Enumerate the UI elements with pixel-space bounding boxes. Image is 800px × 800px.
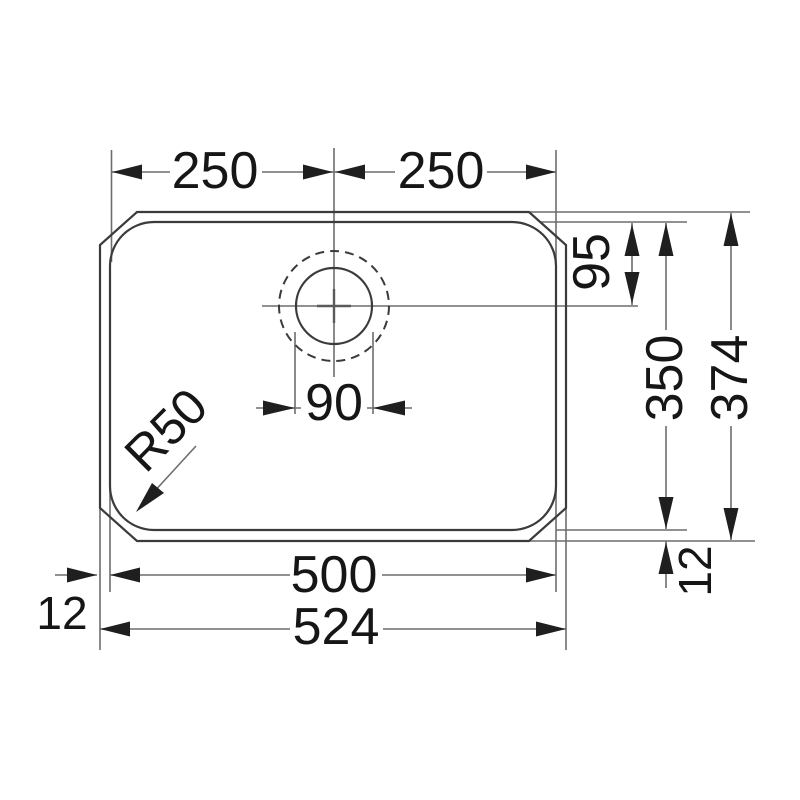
arrow-right-icon <box>536 622 566 637</box>
arrow-up-icon <box>659 223 674 256</box>
dim-label-corner-radius: R50 <box>114 378 218 482</box>
dim-label-drain-offset: 95 <box>563 233 621 291</box>
dim-label-top-right: 250 <box>398 142 485 200</box>
arrow-right-icon <box>263 401 295 416</box>
dim-label-overall-width: 524 <box>293 598 380 656</box>
dim-label-rim-left: 12 <box>36 587 87 639</box>
radius-leader-arrow-icon <box>136 483 164 512</box>
arrow-right-icon <box>67 568 97 583</box>
arrow-up-icon <box>625 224 640 256</box>
arrow-down-icon <box>724 508 739 540</box>
technical-drawing-canvas: 250 250 95 350 374 90 R50 500 524 12 12 <box>0 0 800 800</box>
dim-label-bowl-width: 500 <box>291 546 378 604</box>
dimension-labels: 250 250 95 350 374 90 R50 500 524 12 12 <box>36 142 759 656</box>
arrow-right-icon <box>526 165 556 180</box>
dim-label-rim-right: 12 <box>669 545 721 596</box>
arrow-left-icon <box>110 568 140 583</box>
arrow-left-icon <box>100 622 130 637</box>
dim-label-drain-diameter: 90 <box>305 374 363 432</box>
dim-label-top-left: 250 <box>172 142 259 200</box>
arrow-left-icon <box>112 165 142 180</box>
arrow-right-icon <box>303 165 333 180</box>
arrow-left-icon <box>335 165 365 180</box>
arrow-left-icon <box>373 401 405 416</box>
arrow-right-icon <box>526 568 556 583</box>
arrow-down-icon <box>625 272 640 304</box>
arrow-up-icon <box>724 213 739 246</box>
dim-label-overall-height: 374 <box>701 335 759 422</box>
arrow-down-icon <box>659 497 674 529</box>
dim-label-bowl-height: 350 <box>636 335 694 422</box>
